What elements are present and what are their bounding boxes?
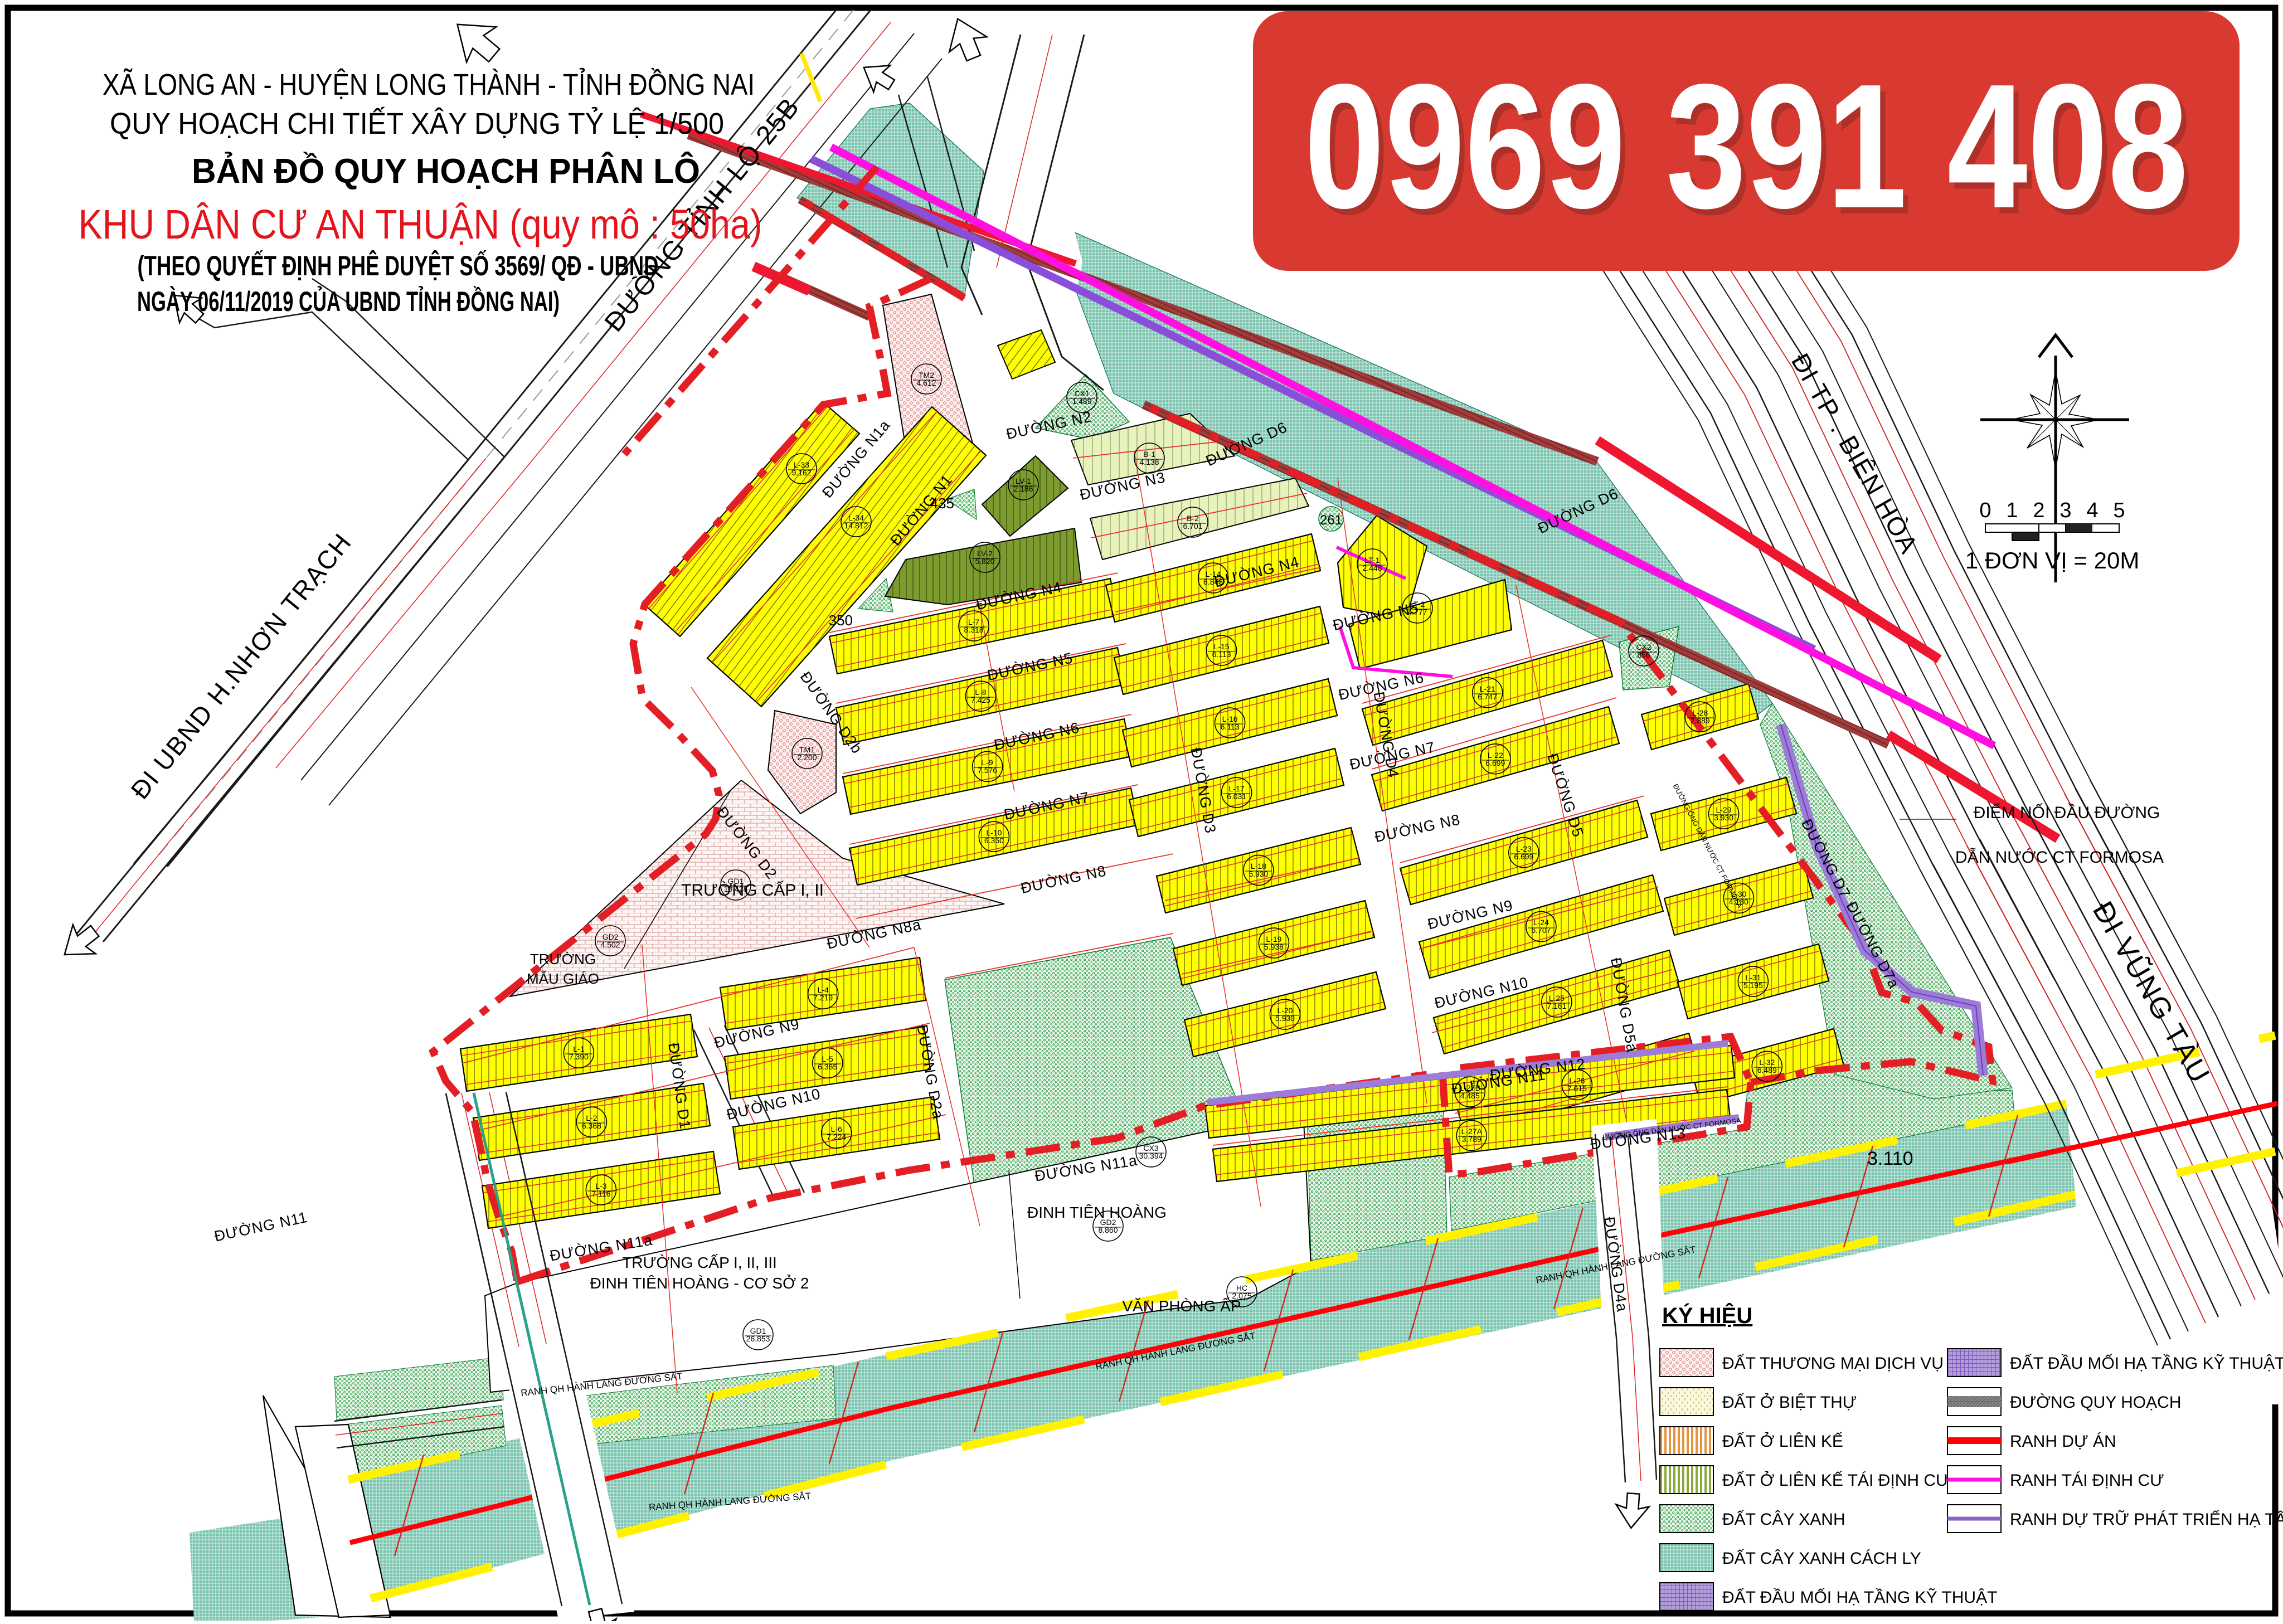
svg-text:7.425: 7.425 <box>971 696 990 704</box>
svg-text:2: 2 <box>2033 499 2044 522</box>
svg-text:3: 3 <box>2059 499 2071 522</box>
svg-text:8.860: 8.860 <box>1098 1226 1118 1234</box>
svg-text:ĐINH TIÊN HOÀNG: ĐINH TIÊN HOÀNG <box>1027 1204 1167 1221</box>
svg-text:6.031: 6.031 <box>1227 792 1246 801</box>
svg-text:6.368: 6.368 <box>582 1121 601 1130</box>
svg-text:7.224: 7.224 <box>827 1132 846 1141</box>
svg-text:7.116: 7.116 <box>591 1189 610 1198</box>
svg-text:ĐẤT Ở BIỆT THỰ: ĐẤT Ở BIỆT THỰ <box>1722 1393 1857 1412</box>
svg-text:RANH DỰ TRỮ PHÁT TRIỂN HẠ TẦNG: RANH DỰ TRỮ PHÁT TRIỂN HẠ TẦNG <box>2010 1510 2283 1529</box>
svg-text:435: 435 <box>930 495 954 512</box>
svg-text:ĐẤT CÂY XANH CÁCH LY: ĐẤT CÂY XANH CÁCH LY <box>1722 1549 1921 1568</box>
svg-text:7.161: 7.161 <box>1547 1001 1566 1010</box>
svg-text:6.113: 6.113 <box>1212 650 1231 659</box>
svg-text:MẪU GIÁO: MẪU GIÁO <box>527 970 599 987</box>
svg-text:6.365: 6.365 <box>818 1062 837 1071</box>
svg-text:6.699: 6.699 <box>1514 852 1533 861</box>
svg-text:261: 261 <box>1320 513 1342 528</box>
svg-text:1: 1 <box>2006 499 2018 522</box>
svg-text:3.110: 3.110 <box>1867 1148 1913 1169</box>
svg-text:ĐẤT THƯƠNG MẠI DỊCH VỤ: ĐẤT THƯƠNG MẠI DỊCH VỤ <box>1722 1354 1944 1373</box>
svg-text:4.612: 4.612 <box>916 378 936 387</box>
svg-text:(THEO QUYẾT ĐỊNH PHÊ DUYỆT SỐ: (THEO QUYẾT ĐỊNH PHÊ DUYỆT SỐ 3569/ QĐ -… <box>138 250 659 281</box>
svg-text:ĐẤT Ở LIÊN KẾ: ĐẤT Ở LIÊN KẾ <box>1722 1432 1843 1451</box>
svg-text:TRƯỜNG CẤP I, II: TRƯỜNG CẤP I, II <box>681 881 824 899</box>
svg-text:856: 856 <box>1637 650 1650 659</box>
svg-text:6.707: 6.707 <box>1531 926 1551 935</box>
svg-text:5.930: 5.930 <box>1249 869 1268 878</box>
svg-text:ĐIỂM NỐI ĐẦU ĐƯỜNG: ĐIỂM NỐI ĐẦU ĐƯỜNG <box>1974 803 2160 822</box>
svg-text:KÝ HIỆU: KÝ HIỆU <box>1662 1302 1752 1328</box>
svg-text:TRƯỜNG CẤP I, II, III: TRƯỜNG CẤP I, II, III <box>622 1254 777 1271</box>
svg-text:7.576: 7.576 <box>978 766 997 775</box>
svg-text:ĐẤT ĐẦU MỐI HẠ TẦNG KỸ THUẬT: ĐẤT ĐẦU MỐI HẠ TẦNG KỸ THUẬT <box>2010 1354 2283 1373</box>
svg-text:BẢN ĐỒ QUY HOẠCH PHÂN LÔ: BẢN ĐỒ QUY HOẠCH PHÂN LÔ <box>192 152 700 191</box>
svg-text:4.502: 4.502 <box>600 940 620 949</box>
svg-text:5.930: 5.930 <box>1275 1014 1295 1023</box>
svg-text:4: 4 <box>2086 499 2098 522</box>
svg-text:6.699: 6.699 <box>1485 758 1505 767</box>
svg-text:3.930: 3.930 <box>1714 813 1733 822</box>
svg-text:ĐẤT CÂY XANH: ĐẤT CÂY XANH <box>1722 1510 1845 1529</box>
svg-text:TRƯỜNG: TRƯỜNG <box>530 951 596 967</box>
svg-text:14.812: 14.812 <box>844 521 868 530</box>
svg-text:6.701: 6.701 <box>1183 522 1202 531</box>
svg-text:2.448: 2.448 <box>1362 563 1382 572</box>
svg-text:DẪN NƯỚC CT FORMOSA: DẪN NƯỚC CT FORMOSA <box>1955 848 2164 867</box>
svg-text:VĂN PHÒNG ẤP: VĂN PHÒNG ẤP <box>1122 1297 1241 1315</box>
svg-text:5.820: 5.820 <box>975 557 994 566</box>
svg-text:1 ĐƠN VỊ = 20M: 1 ĐƠN VỊ = 20M <box>1965 547 2140 573</box>
svg-text:XÃ LONG AN - HUYỆN LONG THÀNH: XÃ LONG AN - HUYỆN LONG THÀNH - TỈNH ĐỒN… <box>103 68 755 101</box>
svg-text:3.789: 3.789 <box>1462 1135 1481 1144</box>
svg-text:RANH TÁI ĐỊNH CƯ: RANH TÁI ĐỊNH CƯ <box>2010 1471 2164 1490</box>
svg-text:RANH DỰ ÁN: RANH DỰ ÁN <box>2010 1432 2116 1451</box>
svg-text:5: 5 <box>2113 499 2125 522</box>
svg-text:ĐẤT Ở LIÊN KẾ TÁI ĐỊNH CƯ: ĐẤT Ở LIÊN KẾ TÁI ĐỊNH CƯ <box>1722 1471 1950 1490</box>
svg-text:6.489: 6.489 <box>1757 1066 1777 1074</box>
svg-text:350: 350 <box>829 612 853 629</box>
svg-text:9.162: 9.162 <box>791 468 811 477</box>
svg-text:6.747: 6.747 <box>1478 692 1497 701</box>
svg-text:2.889: 2.889 <box>1691 716 1710 725</box>
svg-text:QUY HOẠCH CHI TIẾT XÂY DỰNG TỶ: QUY HOẠCH CHI TIẾT XÂY DỰNG TỶ LỆ 1/500 <box>110 107 724 140</box>
svg-text:7.219: 7.219 <box>813 993 833 1002</box>
svg-text:7.615: 7.615 <box>1567 1084 1587 1093</box>
svg-text:5.195: 5.195 <box>1743 981 1763 990</box>
svg-text:7.390: 7.390 <box>569 1052 589 1061</box>
svg-text:4.138: 4.138 <box>1139 458 1159 466</box>
svg-text:0: 0 <box>1979 499 1991 522</box>
svg-text:ĐƯỜNG QUY HOẠCH: ĐƯỜNG QUY HOẠCH <box>2010 1393 2182 1412</box>
svg-text:ĐẤT ĐẦU MỐI HẠ TẦNG KỸ THUẬT: ĐẤT ĐẦU MỐI HẠ TẦNG KỸ THUẬT <box>1722 1588 1997 1607</box>
svg-text:8.318: 8.318 <box>964 625 984 634</box>
svg-text:KHU DÂN CƯ AN THUẬN (quy mô :: KHU DÂN CƯ AN THUẬN (quy mô : 50ha) <box>79 201 762 247</box>
svg-text:30.394: 30.394 <box>1139 1151 1163 1160</box>
svg-text:NGÀY 06/11/2019 CỦA UBND TỈNH: NGÀY 06/11/2019 CỦA UBND TỈNH ĐỒNG NAI) <box>137 285 560 317</box>
svg-text:6.350: 6.350 <box>984 836 1004 845</box>
svg-text:5.938: 5.938 <box>1264 942 1284 951</box>
svg-text:6.113: 6.113 <box>1221 722 1240 731</box>
svg-text:1.489: 1.489 <box>1072 397 1091 406</box>
svg-text:2.200: 2.200 <box>797 753 817 762</box>
svg-text:ĐINH TIÊN HOÀNG - CƠ SỞ 2: ĐINH TIÊN HOÀNG - CƠ SỞ 2 <box>590 1274 809 1292</box>
svg-text:26.853: 26.853 <box>746 1334 770 1343</box>
svg-text:0969 391 408: 0969 391 408 <box>1304 47 2188 245</box>
svg-text:2.186: 2.186 <box>1013 484 1033 493</box>
